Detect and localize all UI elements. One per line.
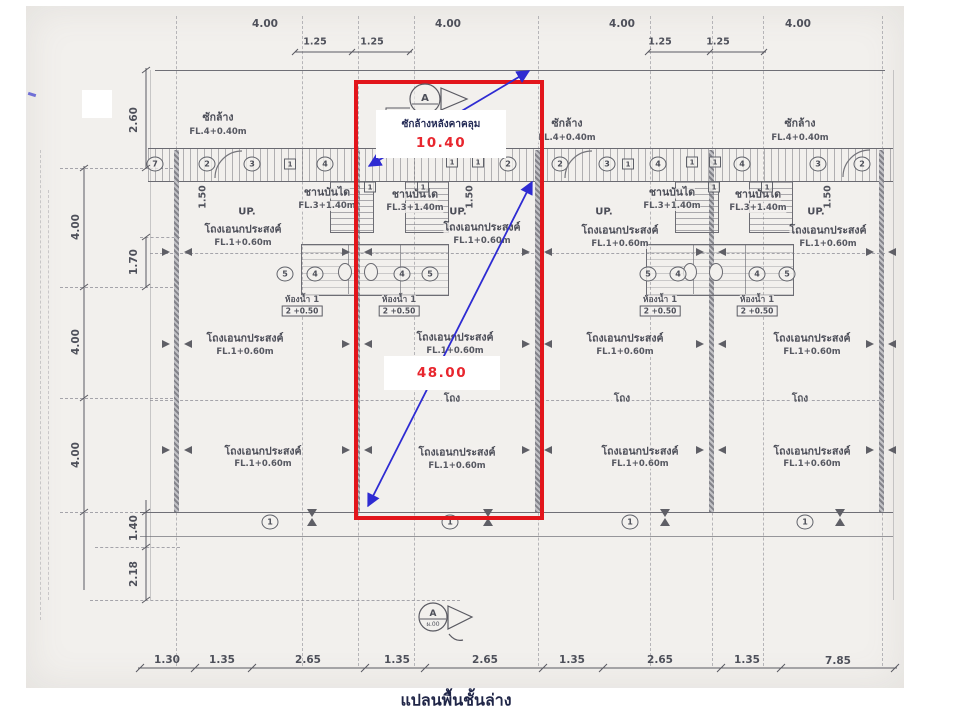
roof-area-label: ซักล้างหลังคาคลุม (402, 117, 481, 132)
floor-plan-screenshot: 4.00 4.00 4.00 4.00 1.25 1.25 1.25 1.25 … (0, 0, 960, 720)
section-mark-bottom: A ผ.00 (419, 603, 472, 640)
section-letter: A (430, 609, 437, 619)
section-sheet: ผ.00 (426, 621, 439, 628)
measurement-patch-width: ซักล้างหลังคาคลุม 10.40 (376, 110, 506, 158)
section-letter: A (421, 93, 429, 104)
height-measurement: 48.00 (417, 365, 467, 381)
door-swing-arcs (215, 150, 870, 178)
measurement-patch-height: 48.00 (384, 356, 500, 390)
width-measurement: 10.40 (416, 135, 466, 151)
